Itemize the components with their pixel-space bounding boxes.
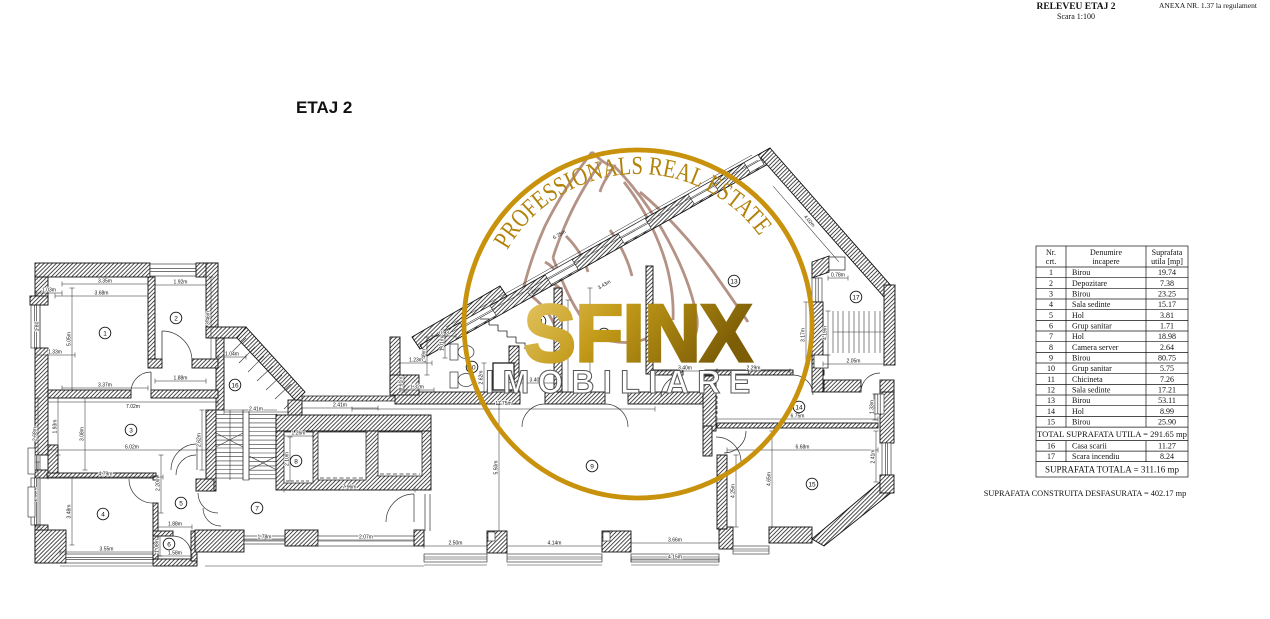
svg-text:4.25m: 4.25m <box>731 484 737 498</box>
svg-text:4.14m: 4.14m <box>548 541 562 547</box>
svg-text:7.26: 7.26 <box>1160 375 1174 384</box>
svg-text:2.41m: 2.41m <box>249 407 263 413</box>
svg-text:3.81: 3.81 <box>1160 311 1174 320</box>
svg-text:4.65m: 4.65m <box>767 472 773 486</box>
svg-text:2.41m: 2.41m <box>871 450 877 464</box>
svg-text:1.01m: 1.01m <box>440 337 446 351</box>
svg-text:Depozitare: Depozitare <box>1072 279 1108 288</box>
svg-text:Grup sanitar: Grup sanitar <box>1072 322 1112 331</box>
svg-text:0.91m: 0.91m <box>399 377 405 391</box>
svg-text:2.62m: 2.62m <box>197 433 203 447</box>
svg-text:8.99: 8.99 <box>1160 407 1174 416</box>
svg-text:3: 3 <box>129 427 133 434</box>
svg-text:15: 15 <box>1047 418 1055 427</box>
svg-text:4.79m: 4.79m <box>99 472 113 478</box>
svg-text:Birou: Birou <box>1072 418 1090 427</box>
svg-text:11.27: 11.27 <box>1158 442 1176 451</box>
svg-text:9: 9 <box>590 463 594 470</box>
svg-text:80.75: 80.75 <box>1158 354 1176 363</box>
svg-text:Birou: Birou <box>1072 354 1090 363</box>
svg-text:13: 13 <box>730 278 738 285</box>
svg-text:1.08m: 1.08m <box>155 539 161 553</box>
svg-text:12: 12 <box>1047 386 1055 395</box>
svg-text:Chicineta: Chicineta <box>1072 375 1103 384</box>
svg-text:Scara incendiu: Scara incendiu <box>1072 452 1119 461</box>
svg-text:6.02m: 6.02m <box>125 445 139 451</box>
svg-text:5.05m: 5.05m <box>67 332 73 346</box>
svg-text:3: 3 <box>1049 290 1053 299</box>
svg-text:13: 13 <box>1047 396 1055 405</box>
svg-text:Suprafata: Suprafata <box>1152 248 1183 257</box>
svg-text:4.19m: 4.19m <box>823 326 829 340</box>
svg-text:10: 10 <box>1047 364 1055 373</box>
svg-text:1.04m: 1.04m <box>225 352 239 358</box>
svg-text:1.88m: 1.88m <box>174 376 188 382</box>
svg-text:1.03m: 1.03m <box>42 288 56 294</box>
svg-text:1.92m: 1.92m <box>174 280 188 286</box>
svg-text:2.10m: 2.10m <box>285 452 291 466</box>
svg-text:16: 16 <box>231 382 239 389</box>
svg-text:5.75: 5.75 <box>1160 364 1174 373</box>
svg-text:4: 4 <box>101 511 105 518</box>
svg-text:6: 6 <box>167 541 171 548</box>
svg-text:18.98: 18.98 <box>1158 332 1176 341</box>
svg-text:3.46m: 3.46m <box>206 311 212 325</box>
svg-text:2.41m: 2.41m <box>333 403 347 409</box>
svg-text:1.58m: 1.58m <box>168 551 182 557</box>
svg-text:Birou: Birou <box>1072 290 1090 299</box>
svg-text:1.93m: 1.93m <box>53 420 59 434</box>
svg-text:SUPRAFATA TOTALA = 311.16 mp: SUPRAFATA TOTALA = 311.16 mp <box>1045 465 1180 475</box>
svg-text:2.68m: 2.68m <box>33 427 39 441</box>
svg-text:17.21: 17.21 <box>1158 386 1176 395</box>
svg-text:3.37m: 3.37m <box>98 383 112 389</box>
svg-text:15.17: 15.17 <box>1158 300 1176 309</box>
svg-text:7: 7 <box>255 505 259 512</box>
svg-text:3.55m: 3.55m <box>100 547 114 553</box>
svg-text:4: 4 <box>1049 300 1053 309</box>
svg-text:1.26m: 1.26m <box>292 431 306 437</box>
svg-text:1.33m: 1.33m <box>48 350 62 356</box>
svg-text:2.05m: 2.05m <box>847 359 861 365</box>
svg-text:17: 17 <box>852 294 860 301</box>
svg-text:2.07m: 2.07m <box>359 535 373 541</box>
svg-text:19.74: 19.74 <box>1158 268 1176 277</box>
svg-text:Hol: Hol <box>1072 332 1085 341</box>
svg-text:8: 8 <box>294 458 298 465</box>
svg-text:TOTAL SUPRAFATA UTILA = 291.65: TOTAL SUPRAFATA UTILA = 291.65 mp <box>1037 429 1187 439</box>
svg-text:Scara 1:100: Scara 1:100 <box>1057 12 1095 21</box>
svg-text:16: 16 <box>1047 442 1055 451</box>
svg-text:5.50m: 5.50m <box>494 461 500 475</box>
svg-text:11: 11 <box>1047 375 1055 384</box>
svg-text:3.17m: 3.17m <box>801 328 807 342</box>
svg-text:Birou: Birou <box>1072 268 1090 277</box>
svg-text:14: 14 <box>795 404 803 411</box>
svg-text:25.90: 25.90 <box>1158 418 1176 427</box>
svg-text:1: 1 <box>103 330 107 337</box>
svg-text:7: 7 <box>1049 332 1053 341</box>
svg-text:2.62m: 2.62m <box>479 371 485 385</box>
svg-text:53.11: 53.11 <box>1158 396 1176 405</box>
svg-text:0.78m: 0.78m <box>831 273 845 279</box>
svg-text:Sala sedinte: Sala sedinte <box>1072 386 1111 395</box>
svg-text:3.66m: 3.66m <box>668 538 682 544</box>
svg-text:IMOBILIARE: IMOBILIARE <box>485 364 758 400</box>
svg-text:7.02m: 7.02m <box>126 404 140 410</box>
svg-text:Birou: Birou <box>1072 396 1090 405</box>
svg-text:8: 8 <box>1049 343 1053 352</box>
svg-text:9: 9 <box>1049 354 1053 363</box>
svg-text:1.78m: 1.78m <box>258 535 272 541</box>
svg-text:6.75m: 6.75m <box>791 414 805 420</box>
svg-text:Casa scarii: Casa scarii <box>1072 442 1108 451</box>
svg-text:3.48m: 3.48m <box>67 505 73 519</box>
svg-text:2.20m: 2.20m <box>156 477 162 491</box>
svg-text:utila [mp]: utila [mp] <box>1151 257 1183 266</box>
svg-text:Grup sanitar: Grup sanitar <box>1072 364 1112 373</box>
svg-text:RELEVEU ETAJ 2: RELEVEU ETAJ 2 <box>1036 2 1115 12</box>
svg-text:7.38: 7.38 <box>1160 279 1174 288</box>
svg-text:2: 2 <box>1049 279 1053 288</box>
svg-text:Hol: Hol <box>1072 407 1085 416</box>
svg-text:15: 15 <box>808 481 816 488</box>
svg-text:1.71: 1.71 <box>1160 322 1174 331</box>
svg-text:1.23m: 1.23m <box>409 358 423 364</box>
svg-text:Denumire: Denumire <box>1090 248 1122 257</box>
svg-text:6.68m: 6.68m <box>796 445 810 451</box>
svg-text:ETAJ 2: ETAJ 2 <box>296 98 352 117</box>
svg-text:Camera server: Camera server <box>1072 343 1119 352</box>
svg-text:1.33m: 1.33m <box>870 400 876 414</box>
svg-text:1.32m: 1.32m <box>410 385 424 391</box>
svg-text:0.93: 0.93 <box>439 331 449 337</box>
svg-text:14: 14 <box>1047 407 1055 416</box>
svg-text:Hol: Hol <box>1072 311 1085 320</box>
svg-text:2.50m: 2.50m <box>449 541 463 547</box>
svg-text:17: 17 <box>1047 452 1055 461</box>
svg-text:7.96m: 7.96m <box>343 485 357 491</box>
svg-text:ANEXA NR. 1.37 la regulament: ANEXA NR. 1.37 la regulament <box>1159 1 1258 10</box>
svg-text:SUPRAFATA CONSTRUITA DESFASURA: SUPRAFATA CONSTRUITA DESFASURATA = 402.1… <box>984 489 1186 498</box>
svg-text:crt.: crt. <box>1046 257 1056 266</box>
svg-text:4.15m: 4.15m <box>668 555 682 561</box>
svg-text:2.64: 2.64 <box>1160 343 1174 352</box>
svg-text:3.35m: 3.35m <box>98 279 112 285</box>
svg-text:6: 6 <box>1049 322 1053 331</box>
svg-text:1.88m: 1.88m <box>168 522 182 528</box>
svg-text:1: 1 <box>1049 268 1053 277</box>
svg-text:Sala sedinte: Sala sedinte <box>1072 300 1111 309</box>
svg-text:23.25: 23.25 <box>1158 290 1176 299</box>
svg-text:3.08m: 3.08m <box>80 427 86 441</box>
svg-text:8.24: 8.24 <box>1160 452 1174 461</box>
svg-text:incapere: incapere <box>1092 257 1120 266</box>
svg-text:5: 5 <box>179 500 183 507</box>
svg-text:1.80: 1.80 <box>35 321 41 331</box>
svg-text:5: 5 <box>1049 311 1053 320</box>
svg-text:2: 2 <box>174 315 178 322</box>
svg-text:3.68m: 3.68m <box>95 291 109 297</box>
svg-text:Nr.: Nr. <box>1046 248 1056 257</box>
